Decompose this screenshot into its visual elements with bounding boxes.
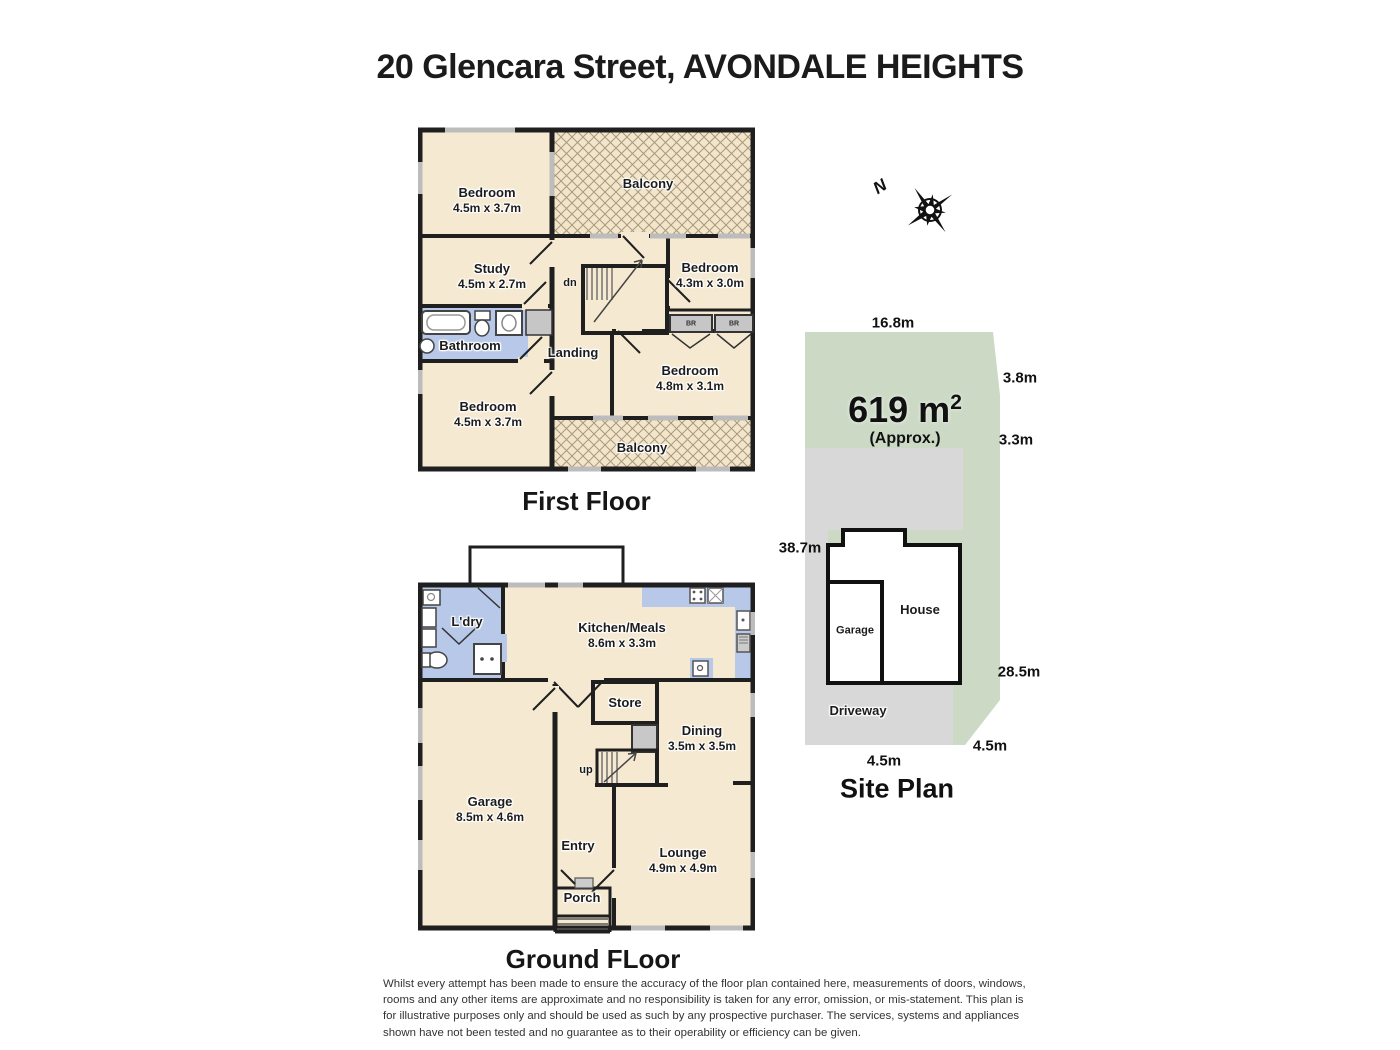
store-lower-unit (632, 725, 657, 752)
stove-burner (700, 598, 703, 601)
label-bathroom: Bathroom (439, 338, 500, 354)
wall-basin-icon (420, 339, 434, 353)
floorplan-page: 20 Glencara Street, AVONDALE HEIGHTS (0, 0, 1400, 1050)
first-floor-plan: Bedroom 4.5m x 3.7m Balcony Study 4.5m x… (418, 126, 755, 472)
compass-hub (925, 205, 935, 215)
pantry-handle (742, 619, 745, 622)
label-bedroom-bl: Bedroom 4.5m x 3.7m (454, 399, 522, 429)
site-driveway-label: Driveway (829, 703, 886, 719)
label-robe-2: BR (729, 321, 739, 328)
compass-rose-icon (870, 165, 970, 250)
shower-icon (474, 644, 501, 674)
sink2-icon (693, 661, 708, 676)
label-stairs-dn: dn (563, 277, 576, 289)
site-dim-top: 16.8m (872, 315, 915, 332)
site-plan-caption: Site Plan (840, 774, 954, 805)
site-dim-right-upper: 3.8m (1003, 370, 1037, 387)
label-balcony-bottom: Balcony (617, 440, 668, 456)
label-garage: Garage 8.5m x 4.6m (456, 794, 524, 824)
label-bedroom-1: Bedroom 4.5m x 3.7m (453, 185, 521, 215)
page-title: 20 Glencara Street, AVONDALE HEIGHTS (0, 48, 1400, 87)
toilet-tank-icon (475, 311, 490, 320)
stove-burner (700, 591, 703, 594)
toilet-gf-tank (422, 653, 430, 667)
stove-burner (693, 598, 696, 601)
site-area-approx: (Approx.) (869, 430, 940, 448)
label-balcony-top: Balcony (623, 176, 674, 192)
site-area: 619 m2 (848, 389, 962, 431)
site-dim-corner: 4.5m (973, 738, 1007, 755)
label-store: Store (608, 695, 641, 711)
toilet-icon (475, 320, 489, 336)
site-dim-left: 38.7m (779, 540, 822, 557)
ground-floor-caption: Ground FLoor (418, 944, 768, 975)
label-robe-1: BR (686, 321, 696, 328)
site-paving-upper (805, 448, 963, 530)
label-study: Study 4.5m x 2.7m (458, 261, 526, 291)
label-landing: Landing (548, 345, 599, 361)
label-entry: Entry (561, 838, 594, 854)
stove-icon (690, 588, 705, 603)
label-dining: Dining 3.5m x 3.5m (668, 723, 736, 753)
deck-top (470, 547, 623, 585)
site-plan: 16.8m 619 m2 (Approx.) 3.8m 3.3m 38.7m 2… (780, 315, 1045, 815)
site-dim-bottom: 4.5m (867, 753, 901, 770)
trough-icon (423, 590, 440, 605)
site-house-label: House (900, 602, 940, 618)
porch-step-mat (575, 878, 593, 888)
washer-icon (422, 608, 436, 627)
label-bedroom-48: Bedroom 4.8m x 3.1m (656, 363, 724, 393)
disclaimer-text: Whilst every attempt has been made to en… (383, 976, 1027, 1041)
shower-dot (480, 657, 484, 661)
label-stairs-up: up (579, 764, 592, 776)
site-dim-right-mid: 3.3m (999, 432, 1033, 449)
site-dim-right-lower: 28.5m (998, 664, 1041, 681)
compass: N (870, 165, 970, 250)
first-floor-caption: First Floor (418, 486, 755, 517)
label-laundry: L'dry (451, 614, 482, 630)
label-porch: Porch (564, 890, 601, 906)
ground-floor-plan: L'dry Kitchen/Meals 8.6m x 3.3m Store Di… (418, 540, 755, 934)
dryer-icon (422, 629, 436, 647)
linen-cupboard (526, 310, 552, 335)
shower-dot (490, 657, 494, 661)
label-kitchen: Kitchen/Meals 8.6m x 3.3m (578, 620, 665, 650)
site-garage-label: Garage (836, 624, 874, 637)
stove-burner (693, 591, 696, 594)
label-bedroom-43: Bedroom 4.3m x 3.0m (676, 260, 744, 290)
label-lounge: Lounge 4.9m x 4.9m (649, 845, 717, 875)
